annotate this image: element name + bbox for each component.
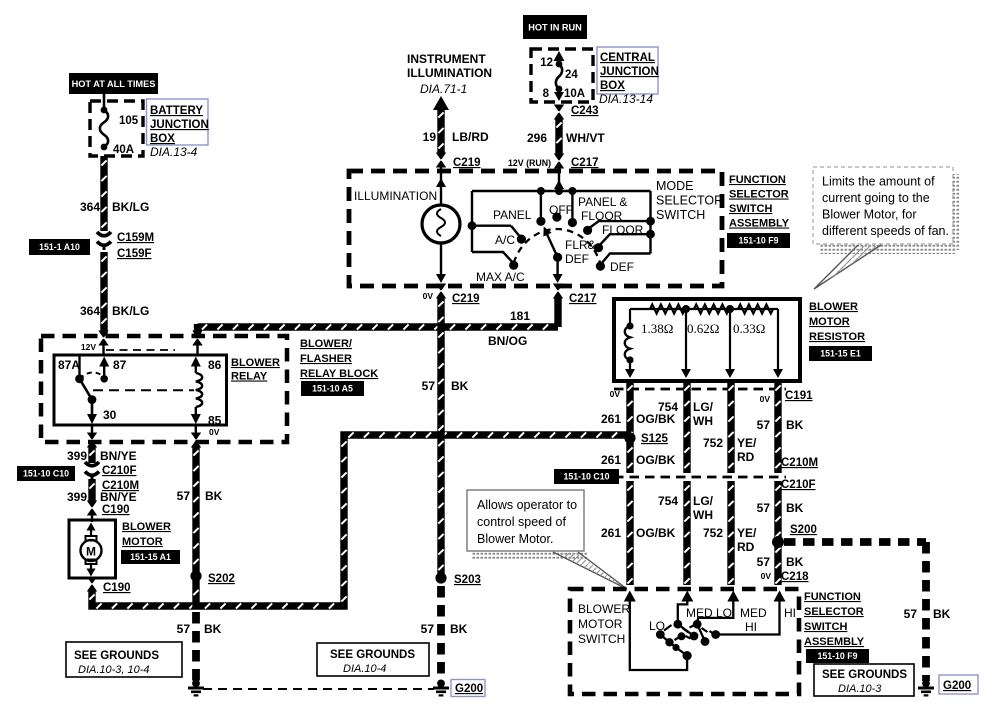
svg-text:FUNCTION: FUNCTION	[804, 591, 861, 603]
svg-text:INSTRUMENT: INSTRUMENT	[407, 52, 486, 66]
svg-text:DEF: DEF	[565, 252, 589, 266]
svg-text:ILLUMINATION: ILLUMINATION	[407, 66, 492, 80]
svg-text:SELECTOR: SELECTOR	[656, 194, 723, 208]
svg-text:ILLUMINATION: ILLUMINATION	[354, 189, 437, 203]
svg-text:DEF: DEF	[610, 260, 634, 274]
svg-text:57: 57	[904, 607, 918, 621]
svg-text:BK: BK	[786, 501, 804, 515]
svg-text:752: 752	[703, 436, 723, 450]
svg-text:M: M	[86, 545, 96, 559]
svg-text:C217: C217	[571, 157, 599, 169]
svg-text:BK: BK	[933, 607, 951, 621]
svg-text:SEE GROUNDS: SEE GROUNDS	[74, 650, 159, 662]
svg-text:85: 85	[208, 414, 222, 428]
svg-text:151-15 E1: 151-15 E1	[820, 349, 861, 359]
svg-text:12V: 12V	[81, 342, 96, 352]
svg-text:40A: 40A	[113, 144, 134, 156]
svg-text:BK: BK	[204, 622, 222, 636]
svg-text:MAX A/C: MAX A/C	[476, 270, 525, 284]
svg-text:HOT AT ALL TIMES: HOT AT ALL TIMES	[72, 79, 156, 89]
svg-text:BK: BK	[451, 379, 469, 393]
svg-text:57: 57	[177, 489, 191, 503]
svg-text:57: 57	[757, 418, 771, 432]
svg-text:RELAY BLOCK: RELAY BLOCK	[300, 368, 378, 380]
svg-text:10A: 10A	[564, 88, 585, 100]
svg-text:752: 752	[703, 526, 723, 540]
svg-text:A/C: A/C	[495, 233, 515, 247]
svg-text:Blower Motor.: Blower Motor.	[477, 532, 553, 546]
svg-text:DIA.13-14: DIA.13-14	[599, 92, 653, 106]
svg-text:HOT IN RUN: HOT IN RUN	[528, 22, 582, 32]
svg-text:C190: C190	[103, 582, 131, 594]
svg-text:DIA.13-4: DIA.13-4	[150, 145, 198, 159]
svg-text:MOTOR: MOTOR	[578, 617, 623, 631]
svg-text:SEE GROUNDS: SEE GROUNDS	[330, 649, 415, 661]
svg-text:C191: C191	[785, 390, 813, 402]
svg-text:FLASHER: FLASHER	[300, 353, 352, 365]
svg-text:LO: LO	[649, 619, 665, 633]
svg-text:C218: C218	[781, 571, 809, 583]
svg-text:OFF: OFF	[549, 203, 573, 217]
svg-text:SWITCH: SWITCH	[804, 621, 847, 633]
svg-text:BLOWER: BLOWER	[809, 301, 858, 313]
svg-text:DIA.10-4: DIA.10-4	[343, 663, 386, 675]
svg-text:261: 261	[601, 453, 621, 467]
svg-text:399: 399	[67, 490, 87, 504]
svg-text:8: 8	[543, 88, 550, 100]
svg-text:151-10 A5: 151-10 A5	[312, 384, 353, 394]
svg-text:S200: S200	[790, 524, 817, 536]
svg-text:BLOWER/: BLOWER/	[300, 338, 352, 350]
svg-text:181: 181	[510, 309, 530, 323]
svg-text:12V (RUN): 12V (RUN)	[508, 158, 551, 168]
svg-text:MOTOR: MOTOR	[122, 536, 163, 548]
svg-text:LG/: LG/	[693, 494, 714, 508]
svg-text:BK: BK	[786, 555, 804, 569]
svg-text:151-10 F9: 151-10 F9	[817, 651, 857, 661]
svg-text:30: 30	[103, 408, 117, 422]
svg-text:364: 364	[80, 200, 100, 214]
svg-text:YE/: YE/	[737, 526, 757, 540]
svg-text:JUNCTION: JUNCTION	[150, 119, 209, 131]
svg-text:SWITCH: SWITCH	[656, 208, 705, 222]
svg-text:OG/BK: OG/BK	[636, 412, 676, 426]
svg-text:Allows operator to: Allows operator to	[477, 498, 577, 512]
svg-text:Blower Motor, for: Blower Motor, for	[822, 208, 916, 222]
svg-text:86: 86	[208, 358, 222, 372]
svg-text:12: 12	[540, 57, 553, 69]
svg-text:S202: S202	[208, 573, 235, 585]
svg-text:C210M: C210M	[781, 457, 818, 469]
svg-text:BLOWER: BLOWER	[578, 602, 630, 616]
svg-text:G200: G200	[943, 680, 971, 692]
svg-text:0.33Ω: 0.33Ω	[733, 321, 765, 336]
svg-text:G200: G200	[455, 683, 483, 695]
svg-text:BOX: BOX	[600, 80, 625, 92]
svg-text:PANEL: PANEL	[493, 208, 532, 222]
svg-text:S125: S125	[641, 433, 668, 445]
svg-text:261: 261	[601, 412, 621, 426]
svg-text:LG/: LG/	[693, 400, 714, 414]
svg-text:BATTERY: BATTERY	[150, 105, 203, 117]
svg-text:0V: 0V	[760, 394, 771, 404]
svg-text:754: 754	[658, 494, 678, 508]
svg-text:151-1 A10: 151-1 A10	[39, 242, 80, 252]
svg-text:RESISTOR: RESISTOR	[809, 331, 865, 343]
svg-text:151-10 F9: 151-10 F9	[738, 236, 778, 246]
svg-text:Limits the amount of: Limits the amount of	[822, 175, 935, 189]
svg-text:ASSEMBLY: ASSEMBLY	[804, 636, 865, 648]
svg-text:261: 261	[601, 526, 621, 540]
svg-text:CENTRAL: CENTRAL	[600, 52, 655, 64]
svg-text:57: 57	[757, 501, 771, 515]
svg-text:C243: C243	[571, 105, 599, 117]
svg-text:FUNCTION: FUNCTION	[729, 174, 786, 186]
svg-text:0V: 0V	[423, 291, 434, 301]
svg-text:HI: HI	[784, 606, 796, 620]
svg-text:MOTOR: MOTOR	[809, 316, 850, 328]
svg-text:BOX: BOX	[150, 133, 175, 145]
svg-text:different speeds of fan.: different speeds of fan.	[822, 224, 949, 238]
svg-text:151-15 A1: 151-15 A1	[130, 552, 171, 562]
svg-text:C219: C219	[452, 293, 480, 305]
svg-text:87: 87	[113, 358, 127, 372]
svg-text:current going to the: current going to the	[822, 191, 930, 205]
svg-text:BK: BK	[205, 489, 223, 503]
svg-text:JUNCTION: JUNCTION	[600, 66, 659, 78]
svg-text:151-10 C10: 151-10 C10	[23, 469, 69, 479]
svg-text:OG/BK: OG/BK	[636, 453, 676, 467]
svg-text:BK/LG: BK/LG	[112, 200, 149, 214]
svg-text:BN/YE: BN/YE	[100, 449, 137, 463]
svg-text:C210F: C210F	[102, 465, 137, 477]
svg-text:SWITCH: SWITCH	[578, 632, 625, 646]
svg-text:PANEL &: PANEL &	[578, 195, 627, 209]
svg-text:BLOWER: BLOWER	[122, 521, 171, 533]
svg-text:151-10 C10: 151-10 C10	[564, 472, 610, 482]
svg-text:0V: 0V	[610, 389, 621, 399]
svg-text:RD: RD	[737, 540, 755, 554]
svg-text:C190: C190	[102, 504, 130, 516]
svg-text:BN/YE: BN/YE	[100, 490, 137, 504]
svg-text:WH: WH	[693, 414, 713, 428]
svg-text:OG/BK: OG/BK	[636, 526, 676, 540]
svg-text:RELAY: RELAY	[231, 371, 268, 383]
svg-text:MODE: MODE	[656, 179, 694, 193]
svg-text:1.38Ω: 1.38Ω	[641, 321, 673, 336]
svg-text:399: 399	[67, 449, 87, 463]
svg-text:YE/: YE/	[737, 436, 757, 450]
svg-text:C219: C219	[453, 157, 481, 169]
svg-text:C159F: C159F	[117, 248, 152, 260]
svg-text:S203: S203	[454, 574, 481, 586]
svg-text:LB/RD: LB/RD	[452, 130, 489, 144]
svg-text:296: 296	[527, 131, 547, 145]
svg-text:57: 57	[421, 622, 435, 636]
svg-text:BLOWER: BLOWER	[231, 357, 280, 369]
svg-text:HI: HI	[745, 620, 757, 634]
svg-text:C159M: C159M	[117, 232, 154, 244]
svg-text:57: 57	[177, 622, 191, 636]
svg-text:SELECTOR: SELECTOR	[804, 606, 864, 618]
svg-text:87A: 87A	[58, 358, 80, 372]
svg-text:BK: BK	[450, 622, 468, 636]
svg-text:DIA.10-3: DIA.10-3	[838, 683, 882, 695]
svg-text:57: 57	[757, 555, 771, 569]
svg-text:C210F: C210F	[781, 479, 816, 491]
svg-text:19: 19	[423, 130, 437, 144]
svg-text:SELECTOR: SELECTOR	[729, 189, 789, 201]
svg-text:DIA.10-3, 10-4: DIA.10-3, 10-4	[78, 664, 150, 676]
svg-text:105: 105	[119, 115, 139, 127]
svg-text:SEE GROUNDS: SEE GROUNDS	[822, 669, 907, 681]
svg-text:SWITCH: SWITCH	[729, 203, 772, 215]
svg-text:24: 24	[565, 69, 578, 81]
svg-text:ASSEMBLY: ASSEMBLY	[729, 218, 790, 230]
svg-text:0V: 0V	[209, 427, 220, 437]
svg-text:C217: C217	[569, 293, 597, 305]
svg-text:0V: 0V	[761, 571, 772, 581]
svg-text:754: 754	[658, 400, 678, 414]
svg-text:0.62Ω: 0.62Ω	[687, 321, 719, 336]
svg-text:BK/LG: BK/LG	[112, 304, 149, 318]
svg-text:57: 57	[422, 379, 436, 393]
svg-text:BK: BK	[786, 418, 804, 432]
svg-text:RD: RD	[737, 450, 755, 464]
svg-text:WH: WH	[693, 508, 713, 522]
svg-text:DIA.71-1: DIA.71-1	[420, 82, 467, 96]
svg-text:MED: MED	[740, 606, 767, 620]
svg-text:BN/OG: BN/OG	[488, 334, 527, 348]
svg-text:364: 364	[80, 304, 100, 318]
svg-text:WH/VT: WH/VT	[566, 131, 605, 145]
svg-text:control speed of: control speed of	[477, 515, 566, 529]
